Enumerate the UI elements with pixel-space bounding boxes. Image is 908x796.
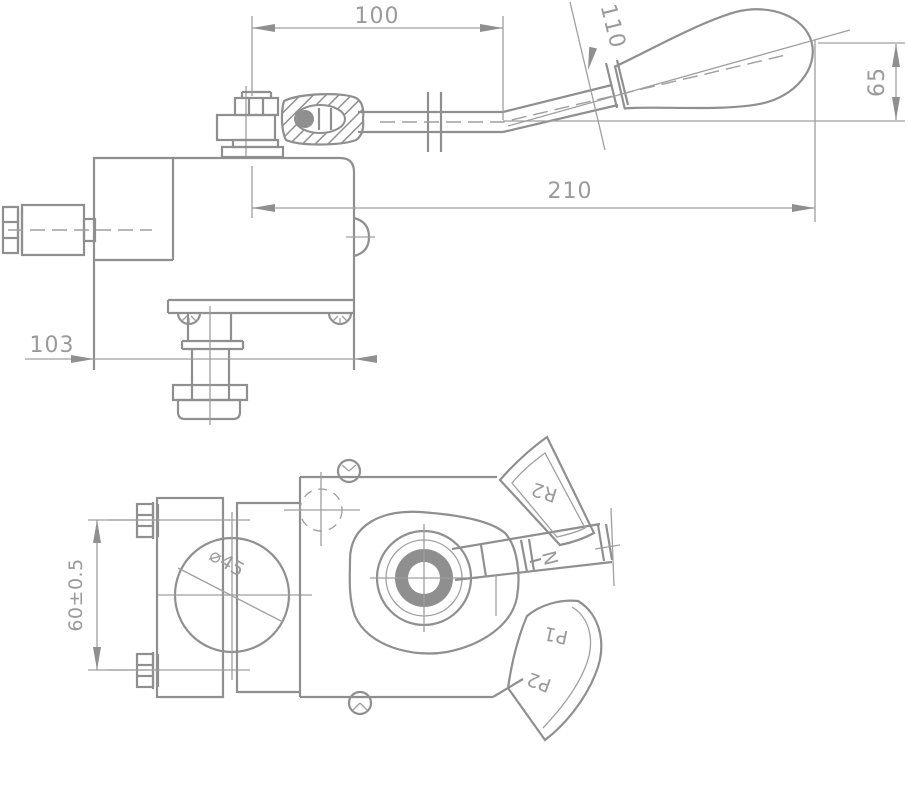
valve-body (94, 158, 375, 370)
label-n: N (539, 548, 564, 568)
gate-plate-p: P1 P2 (508, 601, 601, 740)
ball-pivot (296, 110, 314, 128)
dim-60-label: 60±0.5 (65, 558, 87, 631)
dimension-60: 60±0.5 (65, 520, 160, 670)
label-p2: P2 (524, 667, 555, 696)
plan-view: ⌀45 60±0.5 (65, 437, 620, 740)
base-screw-right (329, 313, 351, 324)
lever-pivot-block (282, 94, 363, 144)
dim-110-label: 110 (595, 2, 630, 52)
hidden-hole (284, 472, 360, 546)
technical-drawing-canvas: 100 110 65 210 (0, 0, 908, 796)
handle-grip (609, 0, 822, 134)
label-r2: R2 (528, 477, 560, 506)
dim-210-label: 210 (548, 179, 593, 204)
clamp-bracket (108, 498, 300, 697)
dim-45-label: ⌀45 (205, 544, 248, 582)
label-p1: P1 (541, 622, 570, 649)
dim-103-label: 103 (30, 333, 75, 358)
dimension-65: 65 (503, 43, 905, 121)
gate-plate-r2: R2 (500, 437, 594, 545)
dim-65-label: 65 (865, 67, 890, 97)
cover-screw-bottom (349, 692, 371, 714)
bore-circle: ⌀45 (158, 512, 312, 680)
boot-and-ball-joint (350, 512, 519, 654)
left-fitting (3, 205, 152, 255)
lever-shaft: N (452, 508, 620, 616)
pivot-castle-nut (217, 86, 283, 158)
side-view: 100 110 65 210 (3, 0, 905, 425)
control-head-drawing: 100 110 65 210 (0, 0, 908, 796)
dim-100-label: 100 (355, 4, 400, 29)
cover-screw-top (338, 460, 360, 482)
